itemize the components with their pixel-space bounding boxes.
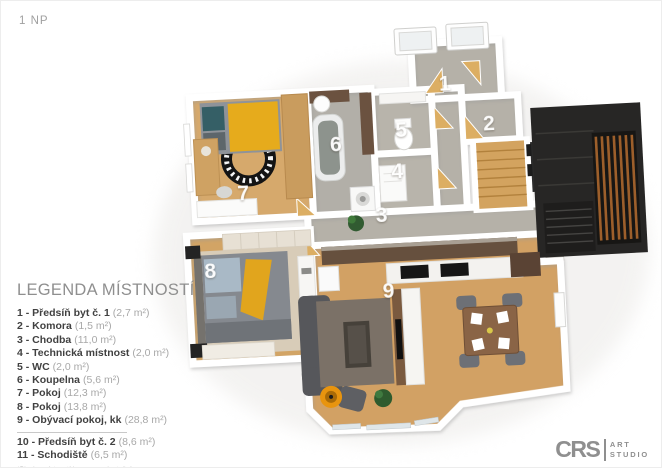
logo-divider — [604, 439, 606, 461]
room-number-7: 7 — [237, 182, 250, 206]
logo-word-art: ART — [610, 440, 649, 450]
legend-item-11: 11 - Schodiště(6,5 m²) — [17, 449, 217, 462]
legend-item-10: 10 - Předsíň byt č. 2(8,6 m²) — [17, 436, 217, 449]
room-number-1: 1 — [438, 72, 451, 96]
dark-staircase-enclosure — [524, 102, 648, 258]
room-number-5: 5 — [395, 119, 408, 143]
legend-item-2: 2 - Komora(1,5 m²) — [17, 320, 217, 333]
room-legend: LEGENDA MÍSTNOSTÍ 1 - Předsíň byt č. 1(2… — [17, 281, 217, 468]
legend-item-1: 1 - Předsíň byt č. 1(2,7 m²) — [17, 307, 217, 320]
legend-item-4: 4 - Technická místnost(2,0 m²) — [17, 347, 217, 360]
logo-brand-text: CRS — [555, 438, 599, 461]
room-number-6: 6 — [329, 133, 342, 157]
legend-list: 1 - Předsíň byt č. 1(2,7 m²) 2 - Komora(… — [17, 307, 217, 462]
room-number-2: 2 — [483, 112, 496, 136]
room-number-9: 9 — [382, 279, 395, 303]
logo-word-studio: STUDIO — [610, 450, 649, 460]
room-number-8: 8 — [204, 260, 217, 284]
legend-item-5: 5 - WC(2,0 m²) — [17, 361, 217, 374]
studio-logo: CRS ART STUDIO — [555, 438, 649, 461]
legend-item-6: 6 - Koupelna(5,6 m²) — [17, 374, 217, 387]
legend-item-8: 8 - Pokoj(13,8 m²) — [17, 401, 217, 414]
room-number-4: 4 — [391, 160, 404, 184]
legend-divider — [17, 432, 127, 433]
legend-title: LEGENDA MÍSTNOSTÍ — [17, 281, 217, 300]
room-number-3: 3 — [375, 204, 388, 228]
legend-item-3: 3 - Chodba(11,0 m²) — [17, 334, 217, 347]
logo-words: ART STUDIO — [610, 440, 649, 459]
apartment-plan: 1 2 3 4 5 6 7 8 9 — [142, 14, 659, 457]
legend-item-9: 9 - Obývací pokoj, kk(28,8 m²) — [17, 414, 217, 427]
page: 1 NP — [0, 0, 662, 468]
legend-item-7: 7 - Pokoj(12,3 m²) — [17, 387, 217, 400]
